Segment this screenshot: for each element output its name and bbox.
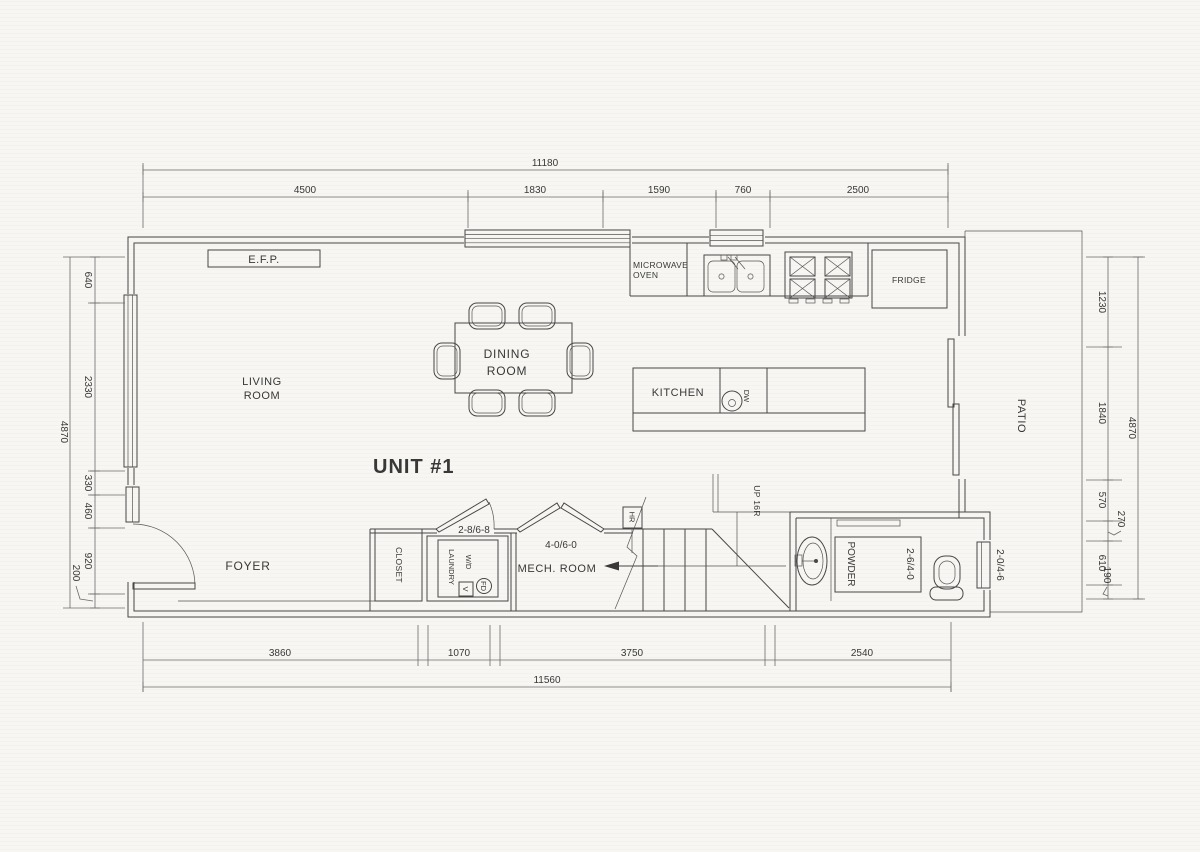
dim-left-seg-4: 920 [82, 553, 93, 570]
dishwasher-label: DW [742, 390, 751, 403]
microwave-label-2: OVEN [633, 270, 658, 280]
room-label-dining-1: DINING [484, 347, 531, 361]
dim-left-seg-1: 2330 [82, 376, 93, 399]
dim-right-seg-2: 570 [1096, 492, 1107, 509]
dim-bottom-seg-2: 3750 [621, 648, 644, 659]
dim-right-overall: 4870 [1126, 417, 1137, 440]
dim-top-seg-4: 2500 [847, 185, 870, 196]
door-size-patio: 2-0/4-6 [994, 549, 1005, 581]
dim-left-seg-3: 460 [82, 503, 93, 520]
door-size-powder: 2-6/4-0 [904, 548, 915, 580]
room-label-foyer: FOYER [225, 559, 270, 573]
unit-title: UNIT #1 [373, 456, 454, 478]
fireplace-label: E.F.P. [248, 254, 280, 266]
dim-top-seg-3: 760 [735, 185, 752, 196]
laundry-label: LAUNDRY [447, 549, 456, 585]
door-size-laundry: 2-8/6-8 [458, 525, 490, 536]
dim-left-seg-5: 200 [70, 565, 81, 582]
floor-drain-label: FD [479, 581, 488, 592]
stair-note: UP 16R [752, 485, 762, 516]
microwave-label-1: MICROWAVE [633, 260, 688, 270]
room-label-powder: POWDER [845, 542, 856, 587]
room-label-kitchen: KITCHEN [652, 387, 704, 399]
vent-label: V [461, 586, 470, 591]
room-label-living-2: ROOM [244, 390, 281, 402]
dim-top-seg-0: 4500 [294, 185, 317, 196]
dim-left-overall: 4870 [58, 421, 69, 444]
door-size-mech: 4-0/6-0 [545, 540, 577, 551]
dim-right-seg-0: 1230 [1096, 291, 1107, 314]
fridge-label: FRIDGE [892, 275, 926, 285]
dim-left-seg-0: 640 [82, 272, 93, 289]
room-label-mech: MECH. ROOM [518, 563, 597, 575]
washer-dryer-label: W/D [464, 555, 473, 570]
handrail-label: HR [628, 512, 637, 523]
dim-bottom-overall: 11560 [533, 675, 561, 686]
room-label-patio: PATIO [1015, 399, 1027, 433]
dim-bottom-seg-3: 2540 [851, 648, 874, 659]
dim-right-seg-1: 1840 [1096, 402, 1107, 425]
room-label-closet: CLOSET [394, 547, 404, 583]
room-label-living-1: LIVING [242, 376, 282, 388]
dim-bottom-seg-1: 1070 [448, 648, 471, 659]
room-label-dining-2: ROOM [487, 364, 528, 378]
dim-top-seg-1: 1830 [524, 185, 547, 196]
dim-right-seg-3: 270 [1115, 511, 1126, 528]
dim-bottom-seg-0: 3860 [269, 648, 292, 659]
floor-plan: PATIO [0, 0, 1200, 852]
dim-top-seg-2: 1590 [648, 185, 671, 196]
dim-left-seg-2: 330 [82, 475, 93, 492]
dim-right-seg-5: 190 [1101, 567, 1112, 584]
dim-top-overall: 11180 [532, 158, 559, 169]
